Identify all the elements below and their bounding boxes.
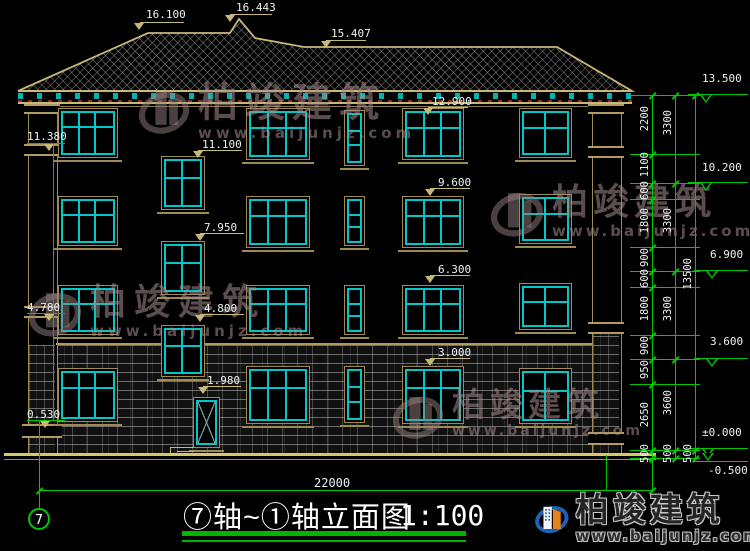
right-level-f2: 3.600 [710, 335, 743, 348]
pilaster-right-cap-top [588, 104, 624, 114]
level-arrow-icon [44, 314, 54, 321]
leader-arrow-icon [195, 315, 205, 322]
dim-label: 13500 [682, 258, 694, 290]
dim-label: 3300 [662, 296, 674, 321]
leader-line [230, 14, 272, 15]
roof-peak-label: 16.443 [236, 1, 276, 14]
stone-cladding [57, 345, 592, 454]
leader-arrow-icon [193, 151, 203, 158]
window [246, 108, 310, 160]
level-marker-icon [700, 183, 712, 191]
leader-arrow-icon [425, 189, 435, 196]
leader-line [140, 22, 184, 23]
dim-label: 3300 [662, 208, 674, 233]
narrow-window [344, 285, 365, 335]
leader-line [428, 107, 468, 108]
dim-label: 1100 [639, 152, 651, 177]
narrow-window [344, 110, 365, 166]
brand-url: www.baijunjz.com [576, 527, 750, 545]
window [402, 108, 464, 160]
stair-window [161, 156, 205, 210]
eave-shadow-line [30, 106, 620, 107]
leader-line [200, 314, 244, 315]
extension-line [630, 384, 700, 385]
roof-ridge-left-label: 16.100 [146, 8, 186, 21]
window [246, 366, 310, 424]
leader-line [430, 188, 470, 189]
roof [8, 0, 648, 96]
window [58, 368, 118, 422]
leader-arrow-icon [225, 15, 235, 22]
window [58, 196, 118, 246]
brand-name: 柏竣建筑 [576, 490, 724, 529]
dim-label: 3300 [662, 110, 674, 135]
dim-label: 500 [639, 444, 651, 463]
window [519, 108, 572, 158]
right-level-f3: 6.900 [710, 248, 743, 261]
extension-line [630, 95, 700, 96]
level-marker-icon [706, 359, 718, 367]
stair-window [161, 241, 205, 295]
dim-chain-outer-line [695, 95, 696, 458]
leader-arrow-icon [321, 41, 331, 48]
overall-dim-line [40, 490, 652, 491]
dim-label: 500 [662, 444, 674, 463]
leader-arrow-icon [425, 276, 435, 283]
right-level-ground: ±0.000 [702, 426, 742, 439]
window [519, 283, 572, 330]
title-underline-thin [182, 540, 466, 542]
level-line [692, 461, 748, 462]
window [58, 108, 118, 158]
entry-step-2 [177, 451, 194, 452]
level-line [694, 270, 748, 271]
leader-arrow-icon [423, 108, 433, 115]
level-marker-icon [706, 271, 718, 279]
level-line [694, 358, 748, 359]
title-underline-thick [182, 531, 466, 536]
dim-label: 600 [639, 181, 651, 200]
narrow-window [344, 366, 365, 423]
leader-line [203, 386, 241, 387]
entry-step-1 [170, 447, 194, 448]
elevation-drawing-canvas: 16.100 16.443 15.407 12.900 11.100 9.600… [0, 0, 750, 551]
brand-logo: 柏竣建筑 www.baijunjz.com [534, 492, 750, 546]
level-arrow-icon [40, 421, 50, 428]
window [402, 285, 464, 335]
axis-extension-right [606, 455, 607, 490]
level-marker-icon [700, 95, 712, 103]
eave-fascia-top [18, 90, 632, 92]
narrow-window [344, 196, 365, 246]
ground-line [4, 453, 656, 456]
leader-arrow-icon [195, 234, 205, 241]
pilaster-right-base [588, 432, 624, 445]
brand-logo-icon [534, 492, 570, 546]
dim-label: 900 [639, 336, 651, 355]
stone-band-top-line [56, 343, 592, 345]
dim-label: 500 [682, 444, 694, 463]
watermark-brand: 柏竣建筑 [552, 184, 750, 222]
window [402, 196, 464, 248]
dim-chain-mid-line [675, 95, 676, 458]
right-level-f4: 10.200 [702, 161, 742, 174]
stair-window [161, 325, 205, 377]
eave-dentils [18, 93, 632, 99]
drawing-title: ⑦轴~①轴立面图 [183, 494, 411, 536]
chain-extension-down [652, 458, 653, 490]
axis-extension-left [39, 421, 40, 508]
window [246, 196, 310, 248]
right-level-below: -0.500 [708, 464, 748, 477]
dim-label: 2200 [639, 106, 651, 131]
window [246, 285, 310, 335]
window [519, 368, 572, 424]
pilaster-left-cap-top [24, 104, 60, 114]
left-level-parapet: 11.380 [27, 130, 67, 143]
eave-fascia-bottom [18, 102, 632, 104]
roof-ridge-right-label: 15.407 [331, 27, 371, 40]
leader-line [430, 358, 470, 359]
dim-label: 600 [639, 269, 651, 288]
leader-line [326, 40, 366, 41]
pilaster-left-cap-11380 [24, 144, 60, 156]
level-marker-icon [702, 453, 714, 461]
axis-bubble-7: 7 [28, 508, 50, 530]
leader-arrow-icon [198, 387, 208, 394]
dim-label: 1800 [639, 208, 651, 233]
leader-line [200, 233, 244, 234]
ground-line-2 [4, 459, 656, 460]
leader-line [430, 275, 470, 276]
dim-label: 3600 [662, 390, 674, 415]
dim-label: 950 [639, 360, 651, 379]
window [402, 366, 464, 424]
dim-label: 2650 [639, 402, 651, 427]
right-level-roof: 13.500 [702, 72, 742, 85]
entry-door [193, 397, 220, 448]
leader-line [198, 150, 242, 151]
window [519, 194, 572, 244]
dim-label: 900 [639, 248, 651, 267]
pilaster-right-cap-mid [588, 322, 624, 334]
dim-label: 1800 [639, 296, 651, 321]
leader-arrow-icon [134, 23, 144, 30]
pilaster-right-cap-upper [588, 146, 624, 158]
dim-chain-inner-line [652, 95, 653, 458]
leader-arrow-icon [425, 359, 435, 366]
window [58, 285, 118, 335]
drawing-scale: 1:100 [400, 499, 484, 532]
overall-dim-label: 22000 [314, 476, 350, 490]
level-arrow-icon [44, 144, 54, 151]
watermark-url: www.baijunjz.com [552, 222, 750, 240]
left-extension-line [53, 143, 54, 421]
